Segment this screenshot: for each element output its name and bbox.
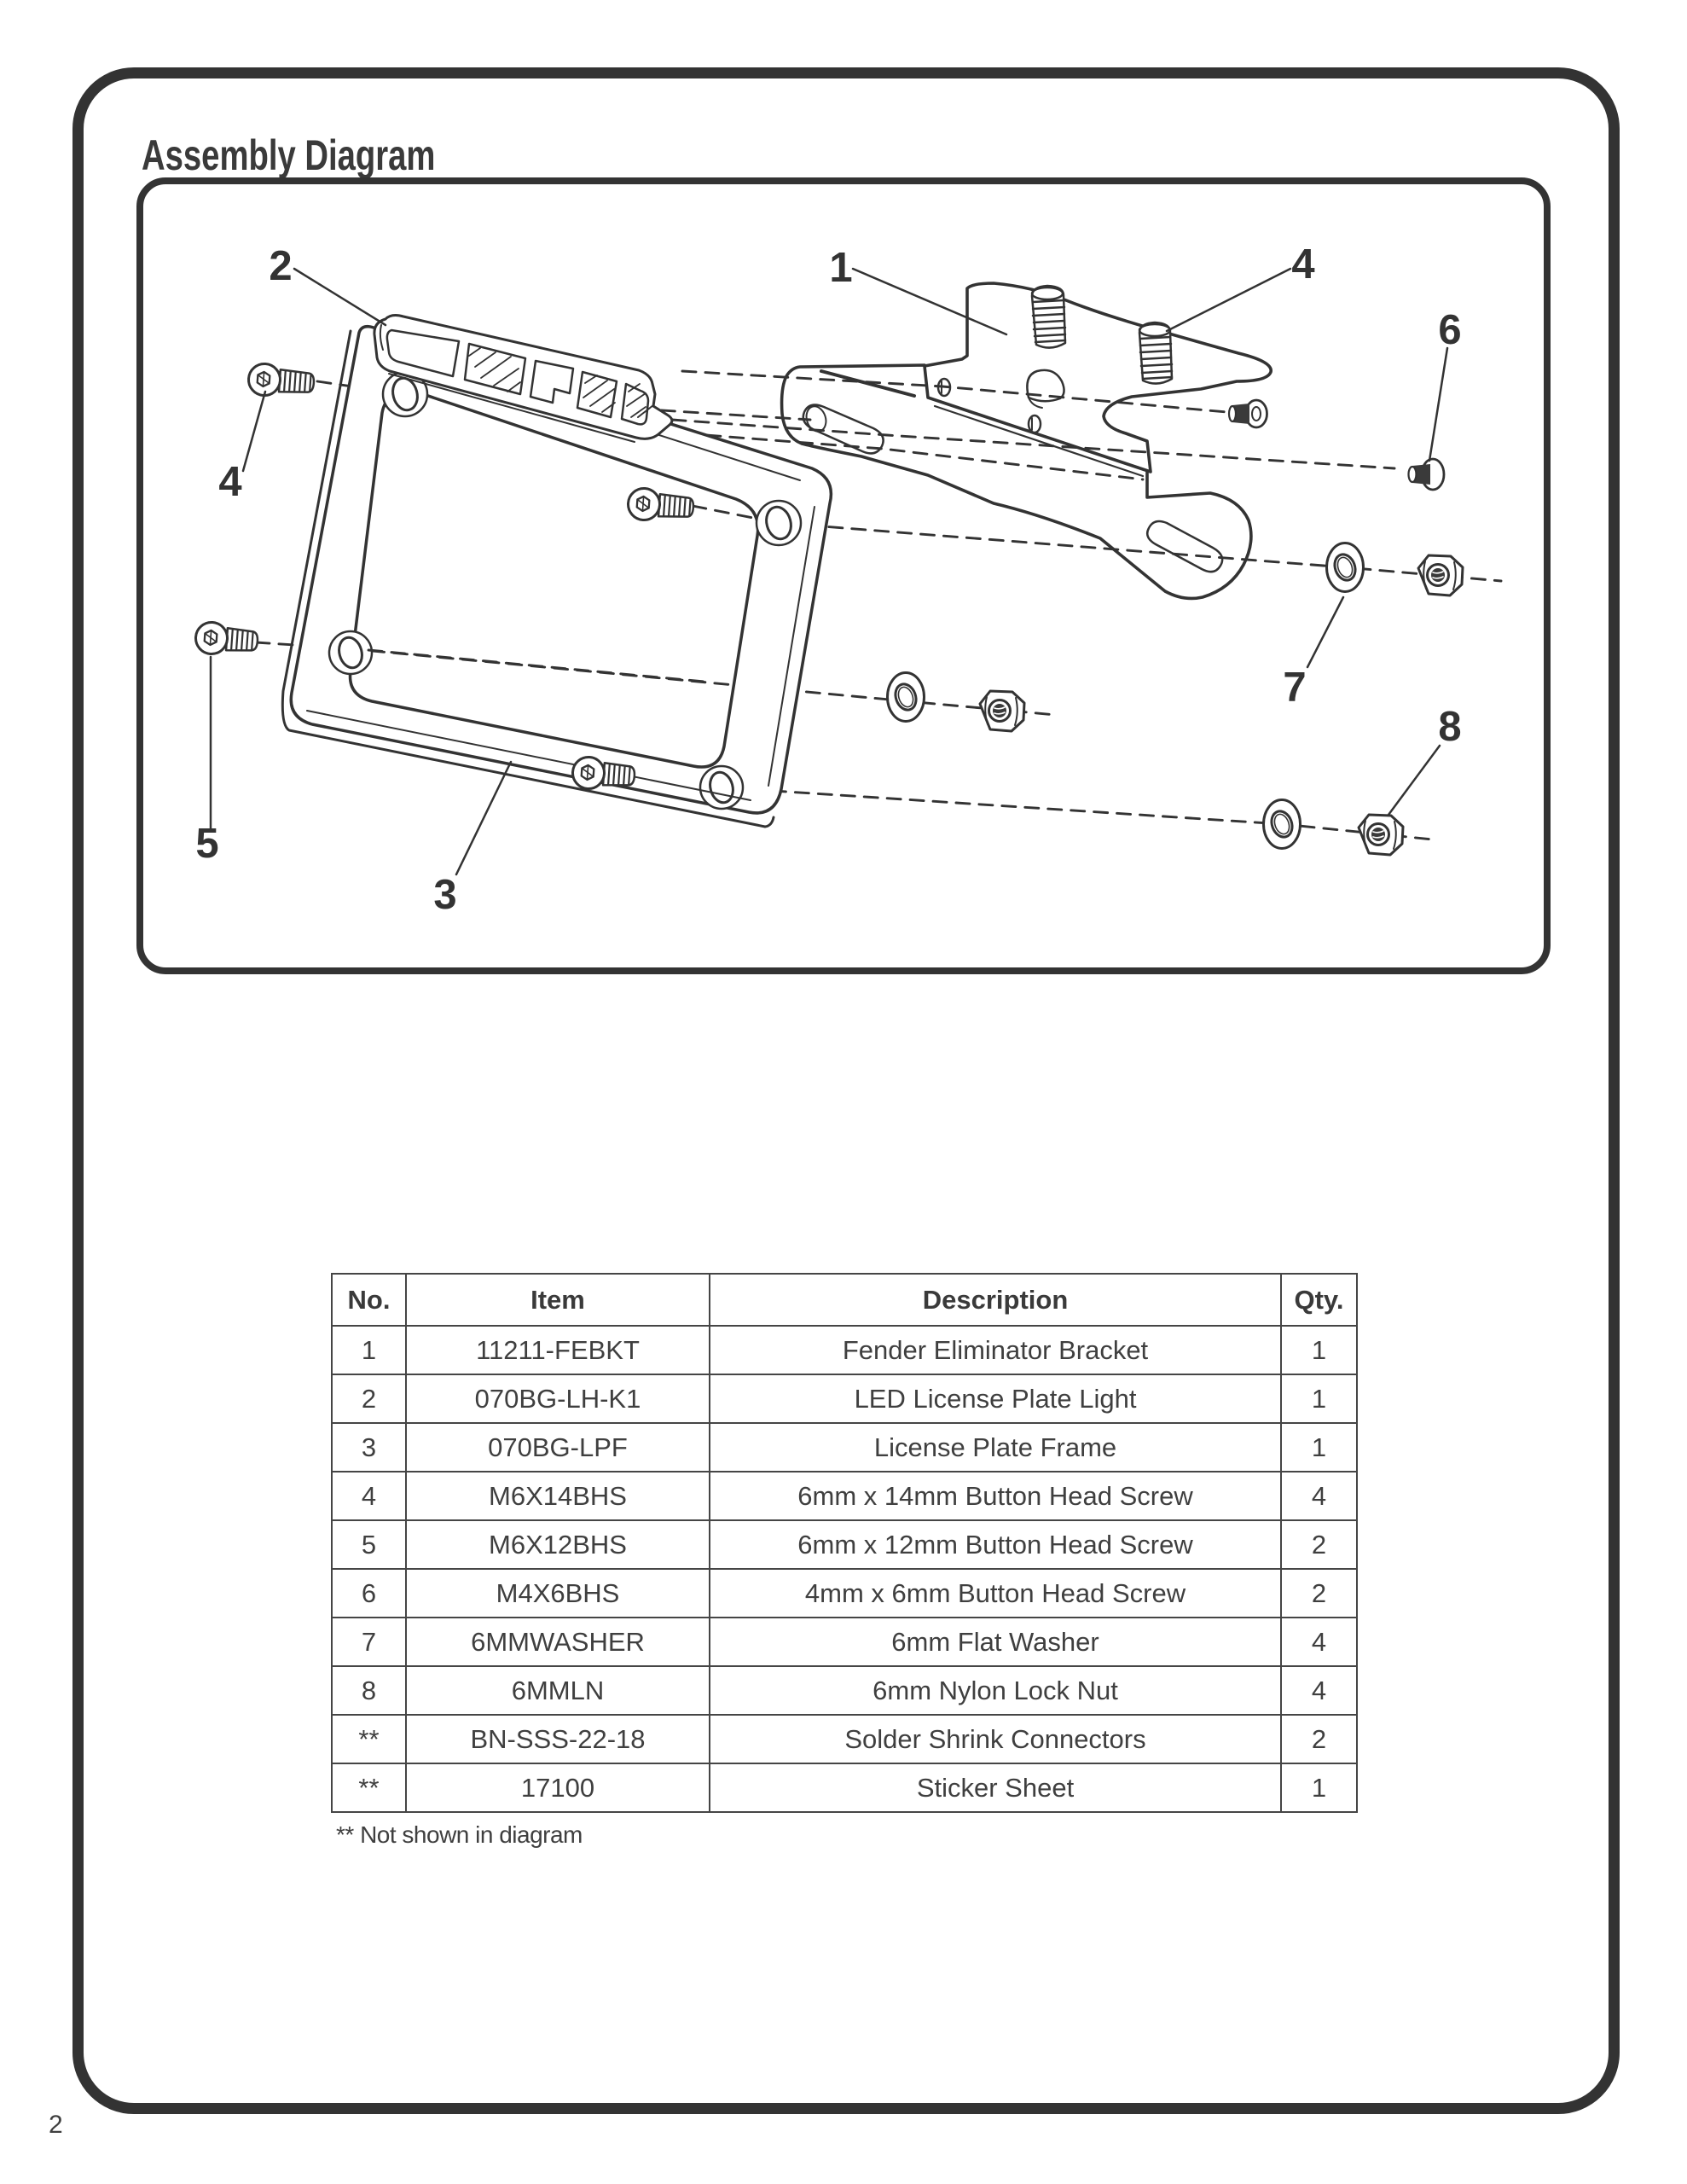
svg-text:4: 4 [218, 459, 241, 505]
svg-text:2: 2 [269, 243, 292, 289]
svg-text:3: 3 [433, 872, 456, 918]
svg-text:4: 4 [1291, 241, 1314, 288]
svg-text:7: 7 [1283, 665, 1306, 711]
svg-text:6: 6 [1438, 307, 1461, 353]
svg-text:8: 8 [1438, 704, 1461, 750]
svg-text:5: 5 [195, 821, 218, 867]
svg-text:1: 1 [829, 245, 852, 291]
